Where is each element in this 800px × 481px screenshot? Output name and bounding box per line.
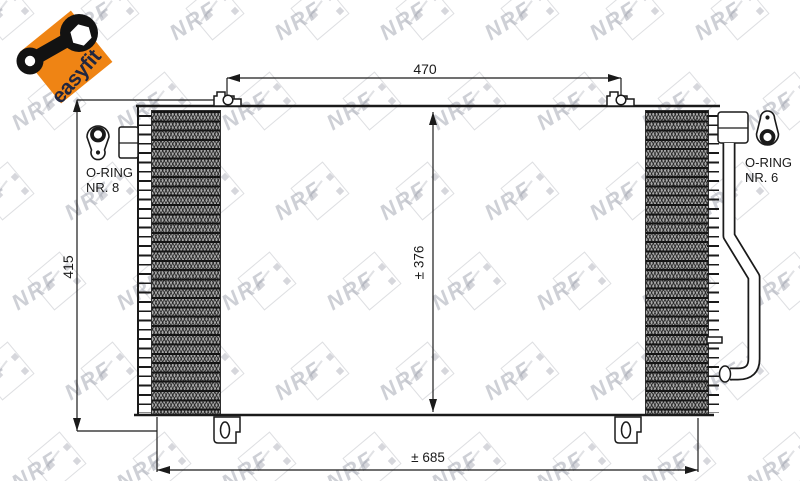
oring-nr6-line1: O-RING	[745, 155, 792, 170]
dim-376-label: ± 376	[412, 240, 427, 286]
oring-nr8-label: O-RING NR. 8	[86, 165, 133, 195]
slot-hole-bottom-left	[221, 422, 230, 438]
oring-left-dot-icon	[96, 150, 100, 154]
easyfit-badge: easyfit	[0, 0, 150, 130]
arrow-right-685	[685, 466, 698, 474]
dim-415-label: 415	[60, 249, 76, 285]
arrow-up-376	[429, 112, 437, 125]
dim-470-label: 470	[410, 61, 440, 77]
dim-685-label: ± 685	[392, 450, 464, 465]
oring-nr6-line2: NR. 6	[745, 170, 792, 185]
oring-nr8-line2: NR. 8	[86, 180, 133, 195]
oring-right-dot-icon	[765, 115, 769, 119]
mounting-hole-top-left	[223, 95, 233, 105]
product-technical-drawing: NRFNRFNRFNRFNRFNRFNRFNRFNRFNRFNRFNRFNRFN…	[0, 0, 800, 481]
arrow-down-376	[429, 399, 437, 412]
tube-end-fitting	[720, 366, 731, 382]
oring-left-ring-icon	[92, 129, 104, 141]
arrow-left-470	[227, 74, 240, 82]
outlet-stub	[707, 337, 722, 343]
slot-hole-bottom-right	[622, 422, 631, 438]
oring-nr8-line1: O-RING	[86, 165, 133, 180]
arrow-left-685	[157, 466, 170, 474]
arrow-right-470	[608, 74, 621, 82]
oring-right-ring-icon	[762, 131, 774, 143]
oring-nr6-label: O-RING NR. 6	[745, 155, 792, 185]
arrow-down-415	[73, 418, 81, 431]
mounting-hole-top-right	[616, 95, 626, 105]
